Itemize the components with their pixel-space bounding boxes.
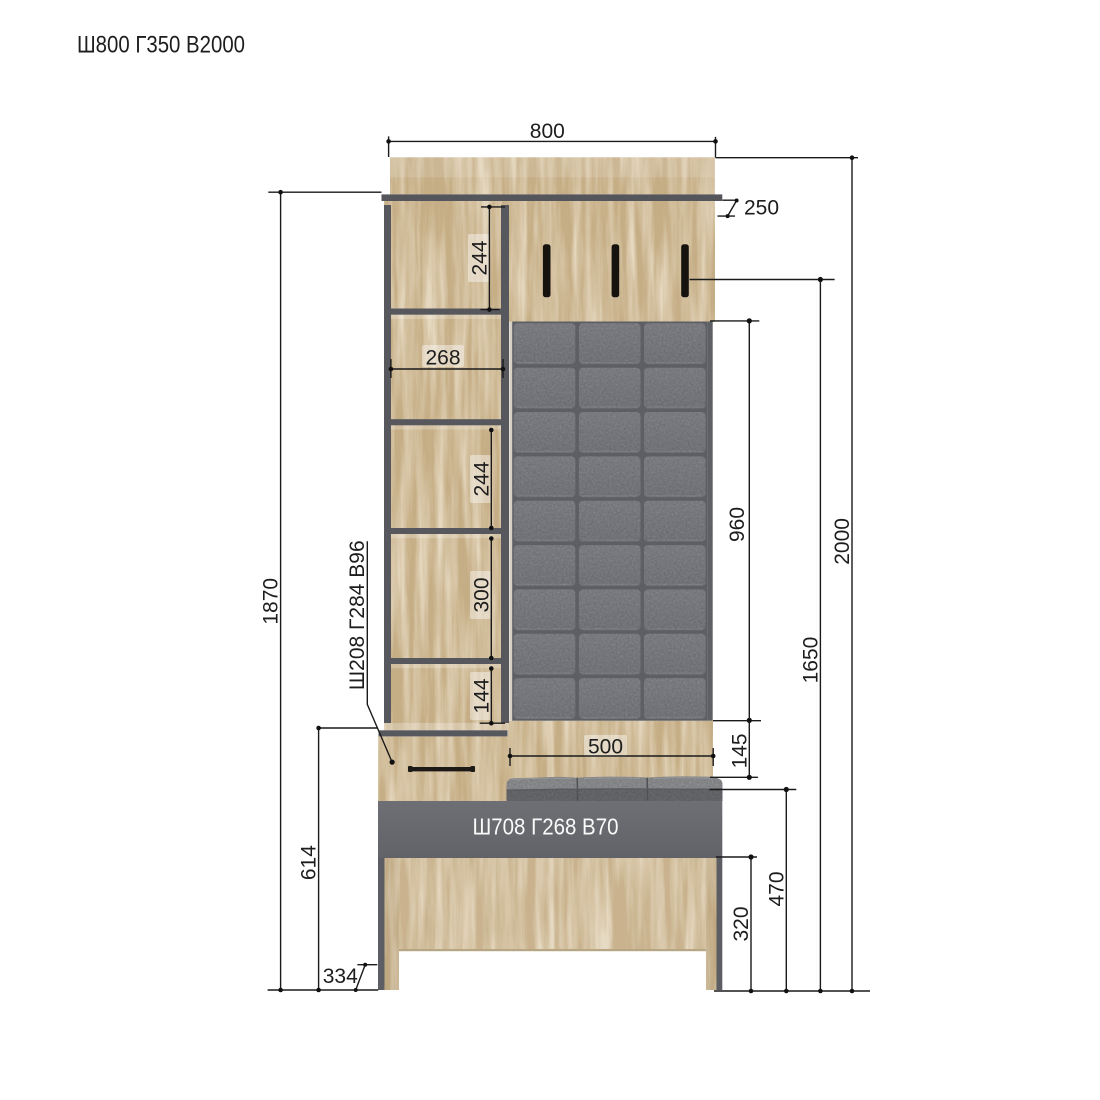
svg-text:320: 320 — [730, 906, 753, 941]
svg-text:Ш800 Г350 В2000: Ш800 Г350 В2000 — [77, 32, 245, 59]
svg-text:Ш708 Г268 В70: Ш708 Г268 В70 — [473, 814, 619, 840]
svg-text:1650: 1650 — [799, 637, 822, 684]
svg-text:300: 300 — [470, 577, 493, 612]
svg-text:268: 268 — [425, 347, 460, 370]
svg-text:145: 145 — [728, 733, 751, 768]
svg-text:244: 244 — [468, 240, 491, 275]
svg-text:144: 144 — [470, 678, 493, 713]
svg-text:614: 614 — [298, 845, 321, 880]
svg-text:1870: 1870 — [260, 578, 283, 625]
svg-text:2000: 2000 — [831, 518, 854, 565]
svg-text:800: 800 — [530, 120, 565, 143]
svg-text:500: 500 — [588, 736, 623, 759]
svg-text:960: 960 — [726, 507, 749, 542]
svg-text:244: 244 — [470, 461, 493, 496]
svg-text:Ш208 Г284 В96: Ш208 Г284 В96 — [346, 540, 369, 690]
svg-text:334: 334 — [323, 965, 358, 988]
svg-text:470: 470 — [765, 871, 788, 906]
svg-text:250: 250 — [744, 196, 779, 219]
